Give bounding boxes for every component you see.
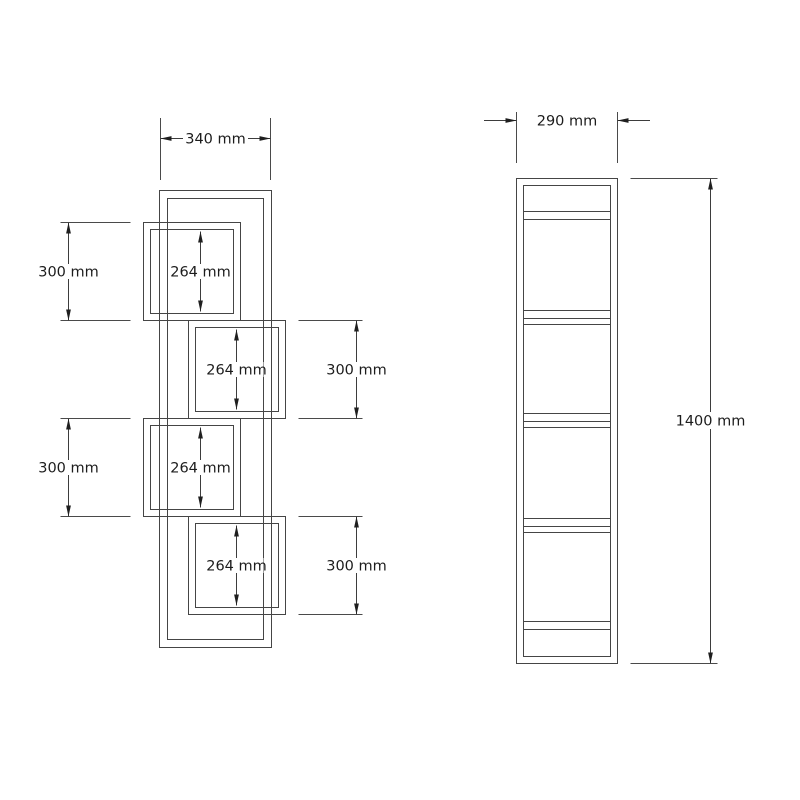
dim-box-4-inner: 264 mm (206, 526, 267, 606)
dim-side-height: 1400 mm (631, 179, 750, 664)
dim-label-left-upper: 300 mm (38, 265, 99, 281)
side-shelf-band-1 (524, 212, 611, 220)
dim-front-left-upper: 300 mm (37, 223, 131, 321)
arrowhead-up (66, 419, 71, 430)
dim-side-depth: 290 mm (484, 112, 650, 163)
front-view (144, 191, 286, 648)
dim-label-box-4-inner: 264 mm (206, 559, 267, 575)
arrowhead-right (260, 136, 271, 141)
dim-front-right-upper: 300 mm (299, 321, 389, 419)
dim-label-right-upper: 300 mm (326, 363, 387, 379)
dim-label-side-height: 1400 mm (676, 414, 746, 430)
dim-front-width: 340 mm (161, 118, 271, 180)
arrowhead-up (66, 223, 71, 234)
arrowhead-up (234, 526, 239, 537)
arrowhead-up (354, 321, 359, 332)
arrowhead-down (66, 310, 71, 321)
arrowhead-left (161, 136, 172, 141)
side-shelf-band-4a (524, 519, 611, 527)
arrowhead-right (506, 118, 517, 123)
dim-label-box-3-inner: 264 mm (170, 461, 231, 477)
arrowhead-left (618, 118, 629, 123)
technical-drawing-page: 340 mm 300 mm 300 mm 300 mm (0, 0, 800, 800)
dim-box-1-inner: 264 mm (170, 232, 231, 312)
arrowhead-down (66, 506, 71, 517)
arrowhead-down (198, 301, 203, 312)
dim-label-left-lower: 300 mm (38, 461, 99, 477)
side-shelf-band-2b (524, 319, 611, 325)
side-shelf-band-3b (524, 422, 611, 428)
dim-label-box-2-inner: 264 mm (206, 363, 267, 379)
arrowhead-up (198, 232, 203, 243)
arrowhead-up (354, 517, 359, 528)
arrowhead-down (354, 604, 359, 615)
dim-box-3-inner: 264 mm (170, 428, 231, 508)
arrowhead-up (708, 179, 713, 190)
shelf-technical-drawing: 340 mm 300 mm 300 mm 300 mm (0, 0, 800, 800)
arrowhead-down (354, 408, 359, 419)
side-shelf-band-5 (524, 622, 611, 630)
arrowhead-up (198, 428, 203, 439)
dim-front-right-lower: 300 mm (299, 517, 389, 615)
arrowhead-up (234, 330, 239, 341)
side-view (517, 179, 618, 664)
arrowhead-down (708, 653, 713, 664)
side-shelf-band-4b (524, 527, 611, 533)
side-shelf-band-2a (524, 311, 611, 319)
dim-front-left-lower: 300 mm (37, 419, 131, 517)
dim-label-side-depth: 290 mm (537, 114, 598, 130)
arrowhead-down (234, 399, 239, 410)
arrowhead-down (234, 595, 239, 606)
dim-label-front-width: 340 mm (185, 132, 246, 148)
dim-box-2-inner: 264 mm (206, 330, 267, 410)
arrowhead-down (198, 497, 203, 508)
side-shelf-band-3a (524, 414, 611, 422)
dim-label-right-lower: 300 mm (326, 559, 387, 575)
dim-label-box-1-inner: 264 mm (170, 265, 231, 281)
